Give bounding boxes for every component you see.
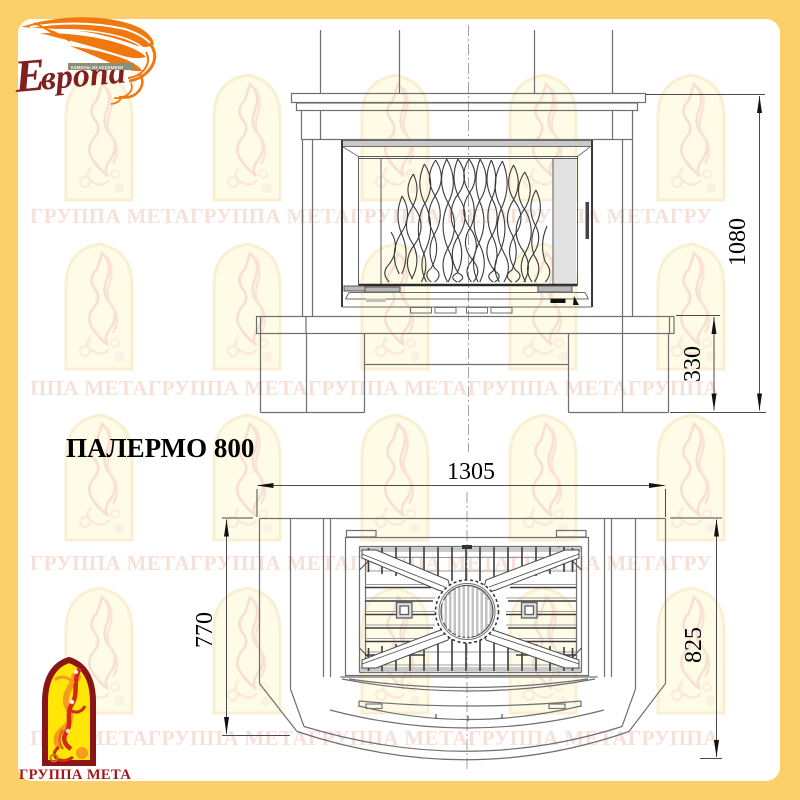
svg-text:1080: 1080 [725, 218, 751, 266]
svg-text:825: 825 [681, 627, 707, 663]
svg-text:770: 770 [192, 612, 218, 648]
svg-text:330: 330 [680, 346, 706, 382]
svg-text:1305: 1305 [447, 459, 495, 485]
svg-text:ПАЛЕРМО 800: ПАЛЕРМО 800 [66, 433, 254, 463]
